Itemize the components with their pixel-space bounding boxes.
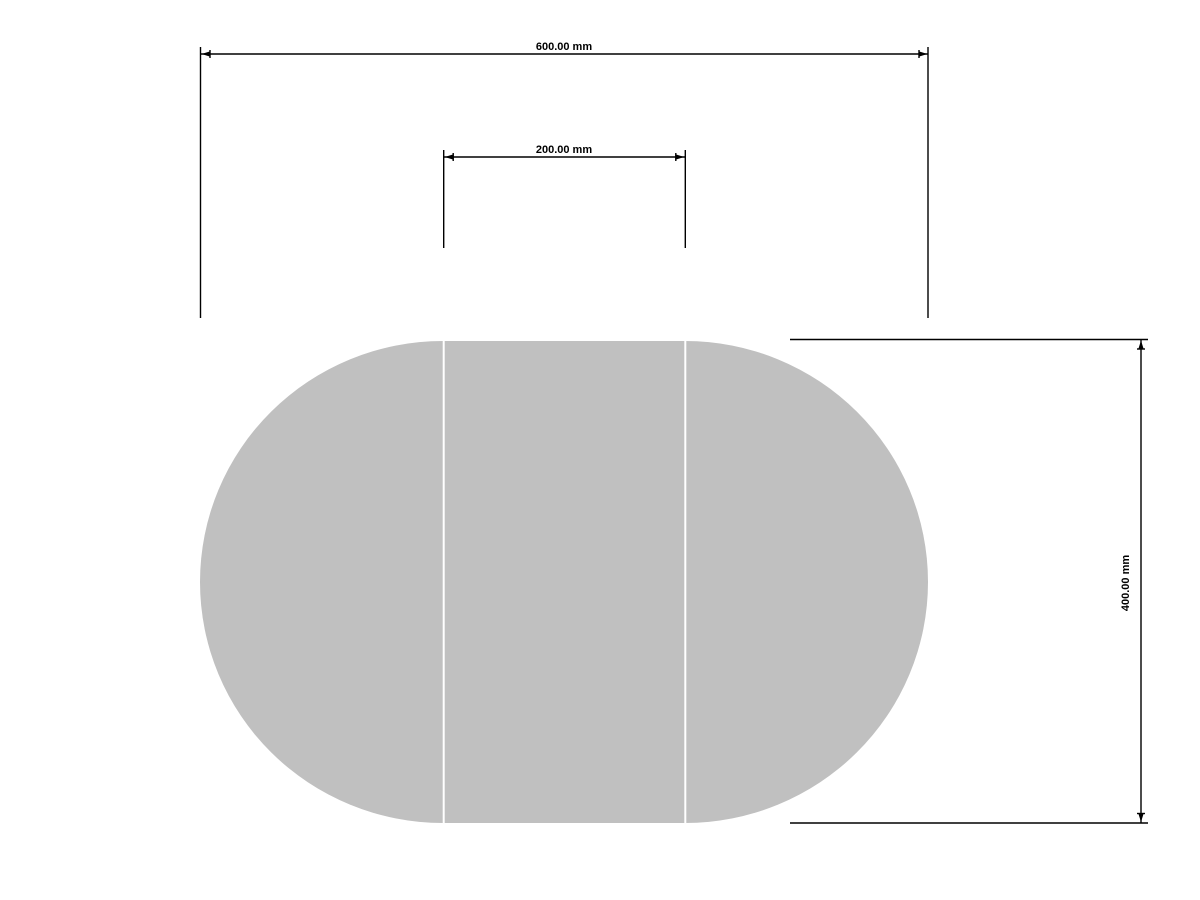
dimension-total-width: 600.00 mm — [201, 41, 929, 318]
dimension-label-total-width: 600.00 mm — [536, 41, 592, 53]
arrowhead-right — [675, 154, 684, 160]
dimension-label-height: 400.00 mm — [1120, 555, 1132, 611]
arrowhead-bottom — [1138, 813, 1144, 822]
arrowhead-top — [1138, 341, 1144, 350]
tabletop-shape — [200, 341, 928, 823]
arrowhead-left — [202, 51, 211, 57]
arrowhead-right — [919, 51, 928, 57]
dimension-label-center-width: 200.00 mm — [536, 144, 592, 156]
tabletop-surface — [200, 341, 928, 823]
technical-drawing: 600.00 mm 200.00 mm 400.00 mm — [0, 0, 1200, 900]
dimension-center-width: 200.00 mm — [444, 144, 686, 248]
drawing-canvas: 600.00 mm 200.00 mm 400.00 mm — [0, 0, 1200, 900]
arrowhead-left — [445, 154, 454, 160]
